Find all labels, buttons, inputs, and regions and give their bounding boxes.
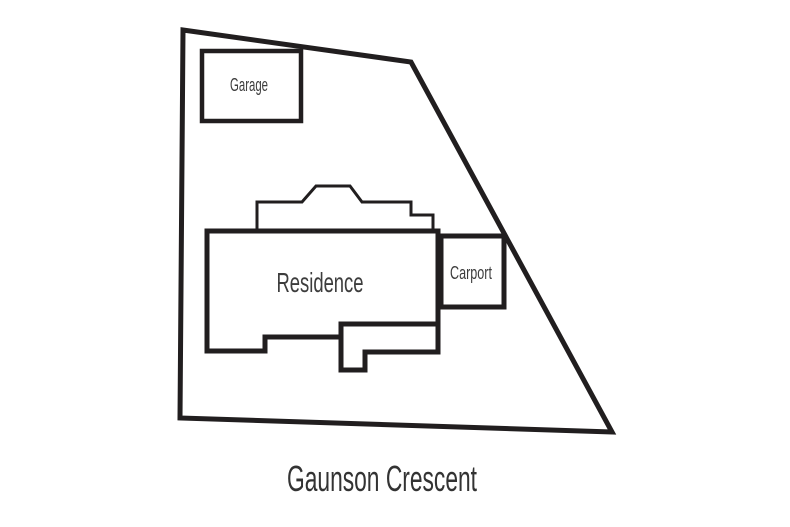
street-name-label: Gaunson Crescent: [287, 458, 477, 499]
carport-label: Carport: [450, 263, 492, 283]
site-plan-figure: Garage Residence Carport Gaunson Crescen…: [0, 0, 790, 527]
garage-label: Garage: [230, 75, 268, 95]
residence-label: Residence: [277, 267, 364, 298]
site-plan-page: Garage Residence Carport Gaunson Crescen…: [0, 0, 790, 527]
residence-rear-extension-outline: [341, 324, 438, 370]
residence-roofline-outline: [257, 186, 433, 231]
